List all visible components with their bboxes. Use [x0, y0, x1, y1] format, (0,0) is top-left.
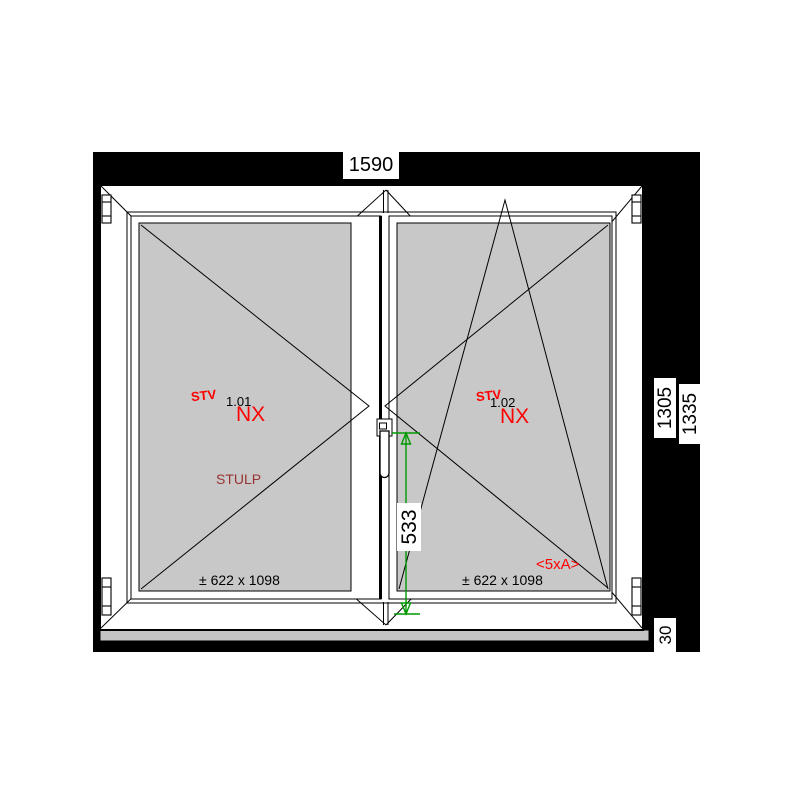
hinge-bottom-left-icon — [102, 578, 111, 615]
pane-left-stv-label: STV — [190, 388, 217, 404]
window-sill[interactable] — [100, 630, 649, 641]
pane-right-note-label: <5xA> — [536, 557, 579, 572]
pane-right-code-label: NX — [500, 406, 529, 427]
dim-height-frame-label: 1305 — [654, 378, 676, 438]
window-cad-drawing: 1590 1305 1335 533 30 STV 1.01 NX STULP … — [0, 0, 800, 800]
pane-left-note-label: STULP — [216, 472, 261, 486]
pane-right-glass-size-label: ± 622 x 1098 — [462, 573, 543, 587]
pane-left-glass-size-label: ± 622 x 1098 — [199, 573, 280, 587]
dim-height-total-label: 1335 — [679, 384, 701, 444]
hinge-bottom-right-icon — [632, 578, 641, 615]
hinge-top-right-icon — [632, 195, 641, 223]
pane-left-code-label: NX — [236, 404, 265, 425]
dim-width-label: 1590 — [343, 151, 399, 179]
dim-handle-height-label: 533 — [397, 503, 421, 551]
hinge-top-left-icon — [102, 195, 111, 223]
dim-sill-height-label: 30 — [654, 618, 676, 652]
